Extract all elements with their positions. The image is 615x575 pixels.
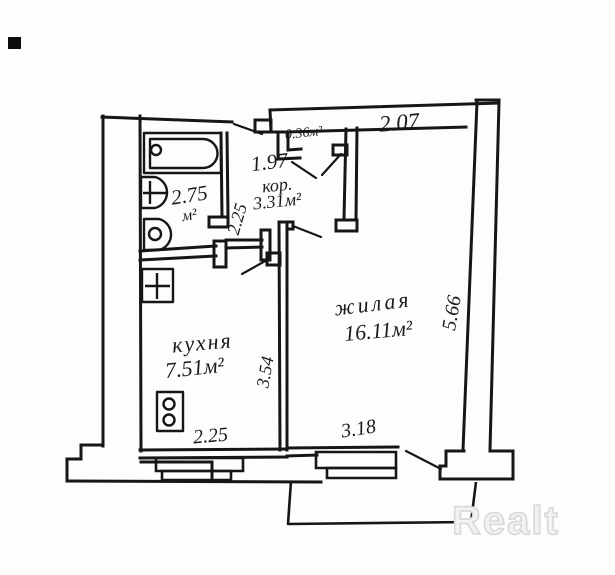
floor-plan-drawing — [0, 0, 615, 575]
balcony — [288, 481, 476, 524]
corridor-living-wall-b — [356, 128, 357, 219]
wall-left-footing — [67, 445, 103, 481]
dimension-corridor-top: 1.97 — [250, 150, 289, 175]
bathroom-area-unit-label: м² — [181, 207, 198, 225]
corridor-living-wall-foot — [336, 220, 357, 231]
wall-right-inner — [463, 102, 477, 450]
living-door-swing-line — [293, 226, 321, 237]
living-window-symbol — [316, 452, 396, 468]
wall-right-footing — [440, 451, 513, 479]
kitchen-sink-icon — [142, 269, 173, 302]
dimension-living-top: 2.07 — [378, 109, 420, 135]
corridor-kitchen-wall-b — [226, 247, 262, 248]
sink-icon — [141, 177, 168, 208]
stove-icon — [157, 392, 183, 431]
dimension-living-bottom: 3.18 — [340, 416, 378, 441]
closet-door-swing-line-b — [322, 154, 341, 175]
living-window-sill — [327, 468, 396, 478]
balcony-door-swing-line — [406, 451, 441, 469]
walls — [67, 100, 513, 482]
dimension-kitchen-bottom: 2.25 — [192, 425, 229, 448]
wall-right-outer — [490, 102, 499, 450]
wall-top-left-cap — [102, 117, 232, 122]
corridor-area-label: 3.31м² — [252, 190, 302, 213]
floor-plan-scan: 0.36м² 2.07 1.97 кор. 3.31м² 2.75 м² 2.2… — [0, 0, 615, 575]
bathtub-icon — [144, 133, 221, 173]
fixtures — [141, 133, 221, 431]
kitchen-door-swing-line — [242, 260, 267, 274]
kitchen-window-sill — [162, 471, 231, 480]
living-area-label: 16.11м² — [343, 317, 413, 345]
kitchen-area-label: 7.51м² — [164, 354, 225, 382]
kitchen-window-symbol — [156, 458, 243, 471]
corridor-living-wall-a — [344, 129, 346, 219]
entry-door-swing-line — [234, 124, 262, 134]
realt-watermark: Realt — [452, 501, 560, 541]
wall-stub — [255, 120, 271, 132]
closet-door-swing-line-a — [292, 162, 316, 178]
wall-bottom-living-b — [287, 455, 317, 456]
balcony-outline — [288, 481, 476, 524]
bathroom-area-value-label: 2.75 — [170, 182, 210, 208]
bathroom-south-wall-b — [140, 256, 216, 260]
wall-bottom-living-a — [287, 447, 398, 448]
wall-bottom-kitchen-a — [140, 449, 287, 450]
toilet-icon — [144, 219, 171, 250]
kitchen-name-label: кухня — [171, 329, 233, 356]
wall-top-outer — [270, 103, 499, 110]
bathroom-east-wall-b — [227, 133, 228, 217]
